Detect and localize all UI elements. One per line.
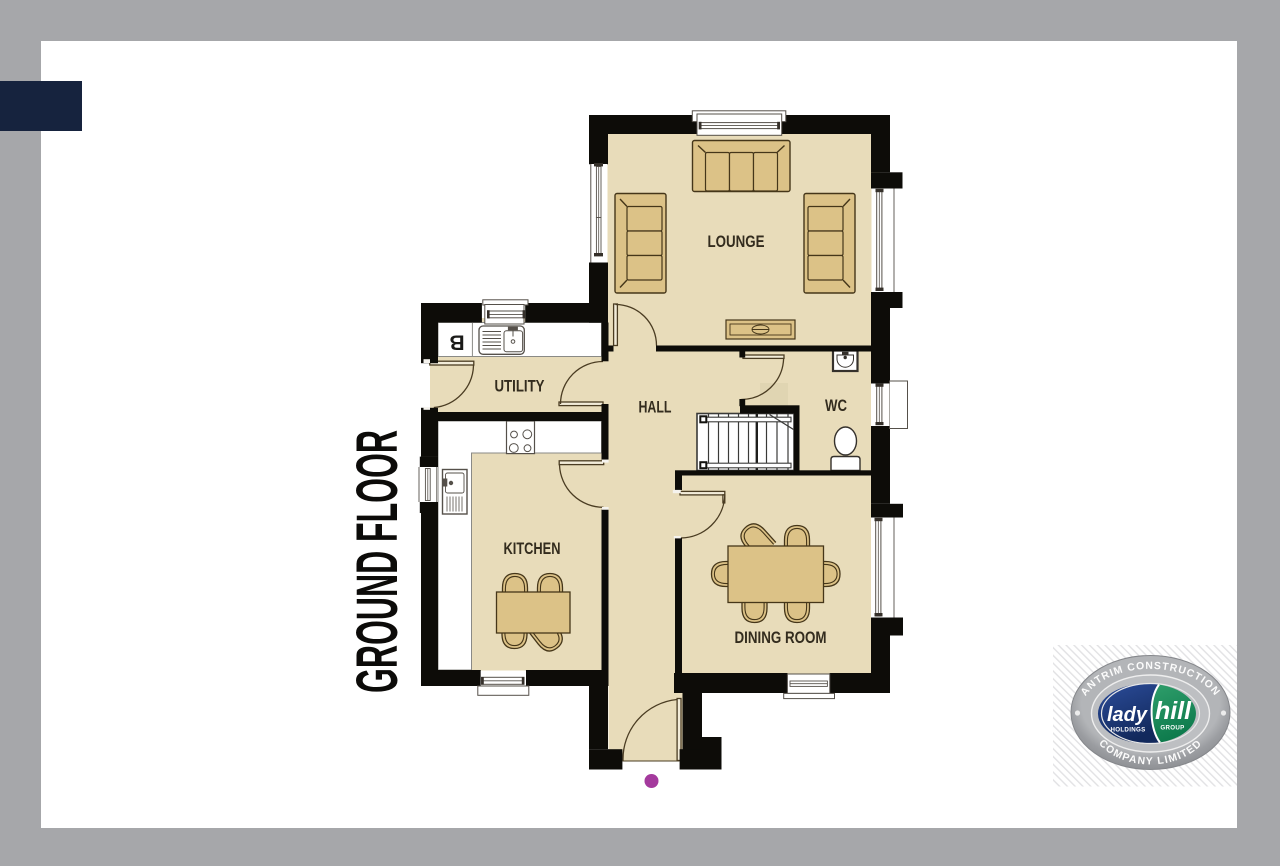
- svg-text:DINING ROOM: DINING ROOM: [735, 629, 827, 647]
- svg-text:UTILITY: UTILITY: [495, 378, 545, 396]
- svg-text:HOLDINGS: HOLDINGS: [1110, 727, 1145, 734]
- svg-text:LOUNGE: LOUNGE: [708, 233, 765, 251]
- svg-text:HALL: HALL: [639, 399, 672, 417]
- svg-text:B: B: [449, 331, 464, 354]
- svg-text:GROUND FLOOR: GROUND FLOOR: [345, 430, 410, 693]
- svg-text:GROUP: GROUP: [1160, 725, 1184, 732]
- svg-text:lady: lady: [1107, 704, 1148, 726]
- svg-text:WC: WC: [825, 397, 847, 415]
- svg-text:KITCHEN: KITCHEN: [504, 540, 561, 558]
- svg-text:hill: hill: [1155, 697, 1192, 725]
